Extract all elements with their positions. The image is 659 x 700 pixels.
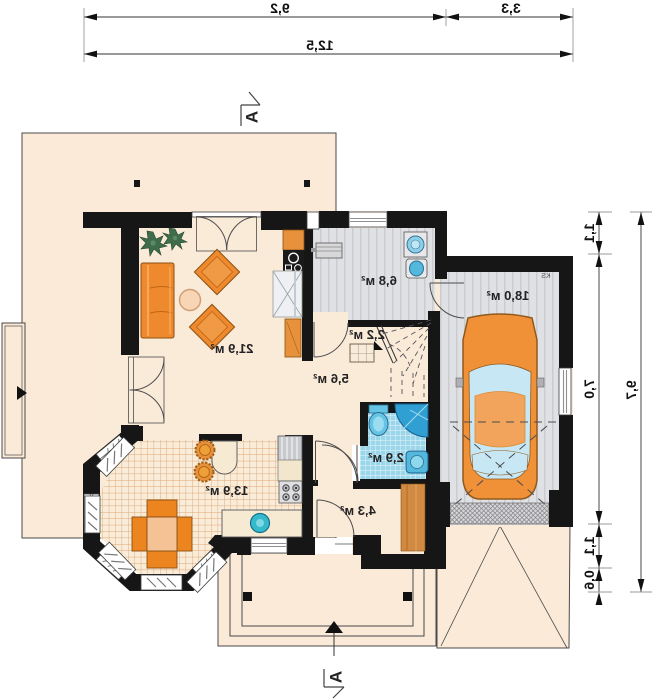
svg-text:9,2: 9,2 — [270, 0, 290, 16]
svg-text:9,7: 9,7 — [623, 380, 639, 400]
svg-text:KS: KS — [541, 273, 551, 280]
svg-text:21,9 м²: 21,9 м² — [210, 341, 254, 356]
svg-text:12,5: 12,5 — [306, 37, 333, 53]
svg-text:1,1: 1,1 — [581, 536, 597, 556]
svg-text:A: A — [326, 671, 345, 683]
svg-text:7,0: 7,0 — [581, 379, 597, 399]
svg-text:13,9 м²: 13,9 м² — [205, 483, 249, 498]
svg-text:A: A — [242, 111, 261, 123]
svg-text:5,6 м²: 5,6 м² — [313, 371, 349, 386]
svg-text:1,1: 1,1 — [581, 223, 597, 243]
svg-text:0,6: 0,6 — [581, 570, 597, 590]
svg-text:2,9 м²: 2,9 м² — [368, 450, 404, 465]
svg-text:18,0 м²: 18,0 м² — [486, 288, 530, 303]
svg-text:4,3 м²: 4,3 м² — [340, 503, 376, 518]
svg-text:3,3: 3,3 — [501, 0, 521, 16]
svg-text:2,2 м²: 2,2 м² — [349, 327, 385, 342]
svg-text:6,8 м²: 6,8 м² — [361, 273, 397, 288]
